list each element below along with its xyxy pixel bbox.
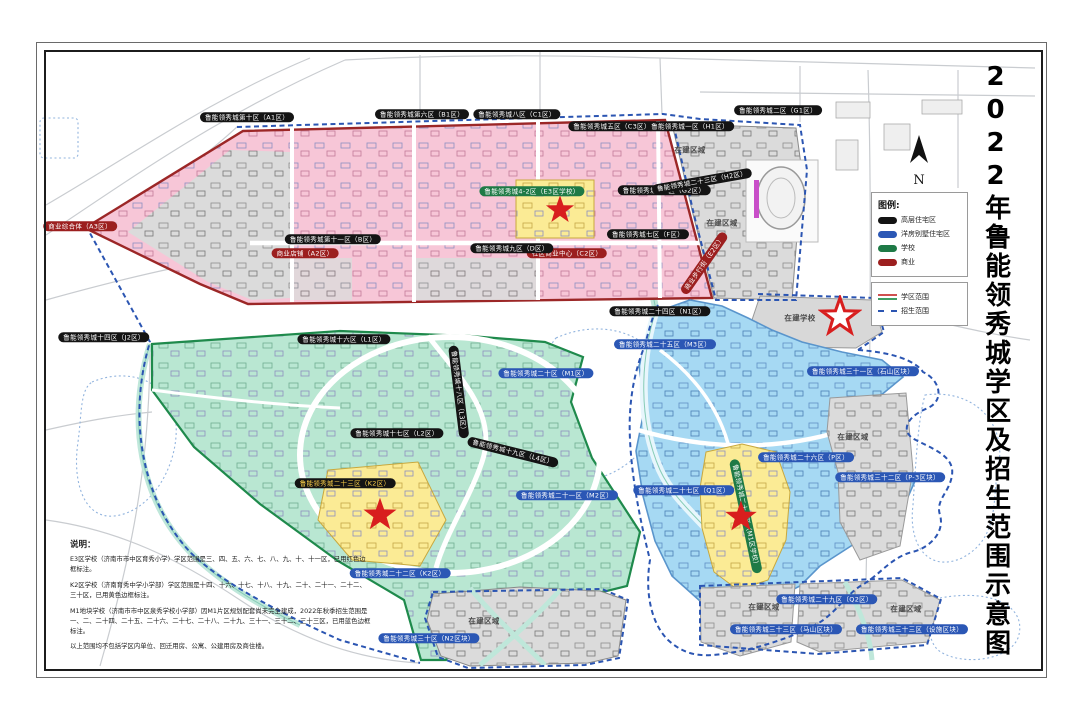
notes-paragraph: E3区学校（济南市市中区育秀小学）学区范围是三、四、五、六、七、八、九、十、十一… [70, 555, 372, 575]
legend-box-lines: 学区范围 招生范围 [871, 282, 968, 326]
highrise-swatch [878, 217, 897, 224]
zone-label: 鲁能领秀城十六区（L1区） [297, 334, 390, 344]
zone-label: 鲁能领秀城三十三区（设施区块） [856, 624, 968, 634]
zone-label: 鲁能领秀城三十区（N2区块） [378, 633, 479, 643]
zone-label: 鲁能领秀城第十一区（B区） [285, 234, 381, 244]
legend: 图例: 高层住宅区 洋房别墅住宅区 学校 商业 [871, 192, 968, 331]
zone-label: 商业步行街（E2区） [679, 230, 729, 295]
zone-label: 商业店铺（A2区） [272, 248, 339, 258]
school-star-icon [360, 495, 400, 539]
area-status-label: 在建区域 [890, 605, 921, 613]
school-star-icon [543, 193, 577, 231]
zone-label: 鲁能领秀城九区（D区） [470, 243, 553, 253]
area-status-label: 在建区域 [837, 433, 868, 441]
zone-label: 鲁能领秀城五区（C3区） [568, 121, 655, 131]
area-status-label: 在建区域 [748, 603, 779, 611]
zone-label: 鲁能领秀城七区（F区） [607, 229, 689, 239]
zone-label: 鲁能领秀城二十五区（M3区） [614, 339, 716, 349]
school-swatch [878, 245, 897, 252]
zone-label: 鲁能领秀城三十一区（石山区块） [807, 366, 919, 376]
area-status-label: 在建区域 [468, 617, 499, 625]
zone-label: 鲁能领秀城十九区（L4区） [467, 436, 560, 468]
planned-school-star-icon [818, 295, 862, 343]
zone-label: 鲁能领秀城第六区（B1区） [375, 109, 469, 119]
legend-item: 学校 [878, 243, 961, 253]
zone-label: 鲁能领秀城二十九区（Q2区） [776, 594, 877, 604]
district-range-line-icon [878, 293, 897, 302]
zone-label: 商业综合体（A3区） [43, 221, 117, 231]
legend-item: 商业 [878, 257, 961, 267]
north-letter: N [898, 173, 940, 188]
north-arrow: N [898, 133, 940, 185]
legend-item: 高层住宅区 [878, 215, 961, 225]
zone-label: 鲁能领秀城三十二区（P-3区块） [835, 472, 945, 482]
zone-label: 鲁能领秀城一区（H1区） [646, 121, 734, 131]
area-status-label: 在建学校 [784, 314, 815, 322]
notes-block: 说明： E3区学校（济南市市中区育秀小学）学区范围是三、四、五、六、七、八、九、… [70, 538, 372, 658]
legend-box-areas: 图例: 高层住宅区 洋房别墅住宅区 学校 商业 [871, 192, 968, 277]
zone-label: 鲁能领秀城二十六区（P区） [758, 452, 854, 462]
legend-title: 图例: [878, 198, 961, 211]
zone-label: 鲁能领秀城二区（G1区） [734, 105, 822, 115]
zone-label: 鲁能领秀城二十四区（N1区） [609, 306, 710, 316]
zone-label: 鲁能领秀城二十区（M1区） [498, 368, 593, 378]
zone-label: 鲁能领秀城二十七区（Q1区） [633, 485, 734, 495]
lowrise-swatch [878, 231, 897, 238]
zone-label: 鲁能领秀城八区（C1区） [473, 109, 560, 119]
zone-label: 鲁能领秀城十四区（J2区） [58, 332, 149, 342]
notes-heading: 说明： [70, 538, 372, 550]
area-status-label: 在建区域 [674, 146, 705, 154]
planning-map-page: 鲁能领秀城第十区（A1区）鲁能领秀城第六区（B1区）鲁能领秀城八区（C1区）鲁能… [0, 0, 1080, 720]
enrollment-range-line-icon [878, 309, 897, 314]
legend-item: 洋房别墅住宅区 [878, 229, 961, 239]
zone-label: 鲁能领秀城十七区（L2区） [350, 428, 443, 438]
zone-label: 鲁能领秀城二十一区（M2区） [516, 490, 618, 500]
zone-label: 鲁能领秀城二十三区（K2区） [295, 478, 396, 488]
zone-label: 鲁能领秀城十八区（L3区） [449, 345, 470, 439]
legend-line-item: 学区范围 [878, 292, 961, 302]
page-title: 2022年鲁能领秀城学区及招生范围示意图 [981, 62, 1010, 658]
commercial-swatch [878, 259, 897, 266]
zone-label: 鲁能领秀城三十三区（马山区块） [730, 624, 842, 634]
zone-label: 鲁能领秀城第十区（A1区） [200, 112, 294, 122]
school-star-icon [722, 498, 760, 540]
north-arrow-icon [898, 133, 940, 169]
notes-paragraph: M1地块学校（济南市市中区泉秀学校小学部）因M1片区规划配套尚未完全建成，202… [70, 607, 372, 637]
legend-line-item: 招生范围 [878, 306, 961, 316]
notes-paragraph: 以上范围均不包括学区内单位、回迁用房、公寓、公建用房及商住楼。 [70, 642, 372, 652]
area-status-label: 在建区域 [706, 219, 737, 227]
notes-paragraph: K2区学校（济南育秀中学小学部）学区范围是十四、十六、十七、十八、十九、二十、二… [70, 581, 372, 601]
